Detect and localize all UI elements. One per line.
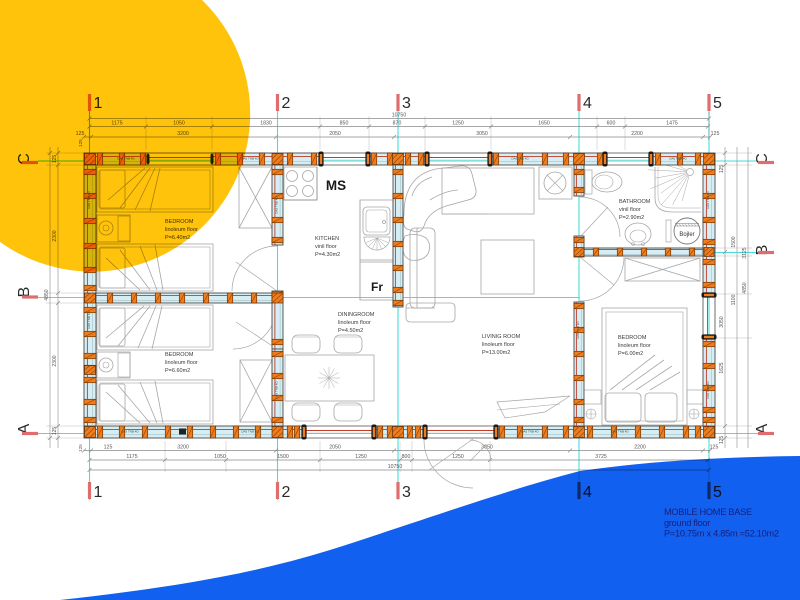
svg-text:1830: 1830 <box>260 121 272 127</box>
svg-text:DA5 TNB 4D: DA5 TNB 4D <box>706 191 710 209</box>
svg-text:125: 125 <box>52 155 58 164</box>
svg-text:2200: 2200 <box>631 131 643 137</box>
svg-text:P=6.40m2: P=6.40m2 <box>165 235 190 241</box>
svg-text:2: 2 <box>282 484 291 501</box>
svg-text:1175: 1175 <box>126 454 137 460</box>
svg-text:10750: 10750 <box>392 113 407 119</box>
svg-text:4: 4 <box>583 95 592 112</box>
svg-text:1175: 1175 <box>111 121 122 127</box>
svg-text:P=13.00m2: P=13.00m2 <box>482 350 510 356</box>
svg-text:1250: 1250 <box>355 454 367 460</box>
svg-text:2050: 2050 <box>329 445 341 451</box>
svg-text:2300: 2300 <box>52 355 58 366</box>
svg-text:P=2.90m2: P=2.90m2 <box>619 215 644 221</box>
svg-text:DA5 TNB 4D: DA5 TNB 4D <box>275 196 279 214</box>
svg-text:DA5 TNB 4D: DA5 TNB 4D <box>669 156 687 160</box>
svg-text:P=6.00m2: P=6.00m2 <box>618 351 643 357</box>
svg-text:BEDROOM: BEDROOM <box>165 352 194 358</box>
svg-text:125: 125 <box>711 131 720 137</box>
svg-text:3: 3 <box>402 95 411 112</box>
svg-text:ground floor: ground floor <box>664 518 710 528</box>
svg-text:DA5 TNB 4D: DA5 TNB 4D <box>611 429 629 433</box>
svg-text:DA5 TNB 4D: DA5 TNB 4D <box>87 311 91 329</box>
svg-text:DA5 TNB 4D: DA5 TNB 4D <box>241 429 259 433</box>
svg-text:125: 125 <box>719 436 725 445</box>
svg-text:3050: 3050 <box>476 131 488 137</box>
svg-text:600: 600 <box>607 121 616 127</box>
svg-text:KITCHEN: KITCHEN <box>315 236 339 242</box>
svg-text:125: 125 <box>78 444 83 452</box>
svg-text:2: 2 <box>282 95 291 112</box>
svg-text:BATHROOM: BATHROOM <box>619 199 651 205</box>
svg-text:1500: 1500 <box>277 454 289 460</box>
svg-text:linoleum floor: linoleum floor <box>165 360 198 366</box>
svg-text:BEDROOM: BEDROOM <box>165 219 194 225</box>
svg-text:P=4.30m2: P=4.30m2 <box>315 252 340 258</box>
svg-text:1650: 1650 <box>538 121 550 127</box>
svg-text:DA5 TNB 4D: DA5 TNB 4D <box>241 156 259 160</box>
svg-text:1: 1 <box>94 95 103 112</box>
svg-text:LIVINIG ROOM: LIVINIG ROOM <box>482 334 521 340</box>
svg-text:4850: 4850 <box>44 289 50 300</box>
svg-text:1625: 1625 <box>719 362 725 373</box>
svg-text:2300: 2300 <box>52 230 58 241</box>
svg-text:3125: 3125 <box>742 247 748 258</box>
svg-text:125: 125 <box>719 165 725 174</box>
svg-text:1100: 1100 <box>731 294 737 305</box>
svg-text:BEDROOM: BEDROOM <box>618 335 647 341</box>
svg-text:linoleum floor: linoleum floor <box>338 320 371 326</box>
svg-text:DA5 TNB 4D: DA5 TNB 4D <box>511 156 529 160</box>
svg-text:MS: MS <box>326 178 346 193</box>
svg-text:MOBILE HOME BASE: MOBILE HOME BASE <box>664 507 752 517</box>
svg-text:3725: 3725 <box>595 454 607 460</box>
svg-text:1475: 1475 <box>666 121 678 127</box>
svg-text:DA5 TNB 4D: DA5 TNB 4D <box>521 429 539 433</box>
svg-text:3050: 3050 <box>481 445 493 451</box>
svg-text:125: 125 <box>104 445 113 451</box>
svg-text:1500: 1500 <box>731 236 737 247</box>
svg-text:DA5 TNB 4D: DA5 TNB 4D <box>121 429 139 433</box>
svg-text:1050: 1050 <box>214 454 226 460</box>
svg-text:2050: 2050 <box>329 131 341 137</box>
svg-text:vinil floor: vinil floor <box>619 207 641 213</box>
svg-text:4: 4 <box>583 484 592 501</box>
svg-text:vinil floor: vinil floor <box>315 244 337 250</box>
svg-text:Fr: Fr <box>371 280 383 294</box>
svg-text:850: 850 <box>340 121 349 127</box>
svg-text:3200: 3200 <box>177 445 189 451</box>
svg-text:125: 125 <box>76 131 85 137</box>
svg-text:DA5 TNB 4D: DA5 TNB 4D <box>87 191 91 209</box>
svg-text:P=4.50m2: P=4.50m2 <box>338 328 363 334</box>
svg-text:800: 800 <box>402 454 411 460</box>
svg-text:3: 3 <box>402 484 411 501</box>
svg-text:1250: 1250 <box>452 454 464 460</box>
svg-text:Bojler: Bojler <box>679 232 694 238</box>
svg-text:5: 5 <box>713 95 722 112</box>
svg-text:1250: 1250 <box>452 121 464 127</box>
svg-text:125: 125 <box>78 139 83 147</box>
svg-text:DA5 TNB 4D: DA5 TNB 4D <box>706 381 710 399</box>
svg-text:1: 1 <box>94 484 103 501</box>
svg-text:P=6.60m2: P=6.60m2 <box>165 368 190 374</box>
svg-text:linoleum floor: linoleum floor <box>482 342 515 348</box>
svg-text:DA5 TNB 4D: DA5 TNB 4D <box>275 381 279 399</box>
svg-text:3200: 3200 <box>177 131 189 137</box>
svg-text:DA5 TNB 4D: DA5 TNB 4D <box>576 321 580 339</box>
svg-text:125: 125 <box>710 445 719 451</box>
svg-text:4850: 4850 <box>742 282 748 293</box>
svg-text:DA5 TNB 4D: DA5 TNB 4D <box>117 156 135 160</box>
svg-text:870: 870 <box>393 121 402 127</box>
svg-text:2200: 2200 <box>634 445 646 451</box>
svg-text:DININGROOM: DININGROOM <box>338 312 375 318</box>
svg-text:5: 5 <box>713 484 722 501</box>
svg-text:125: 125 <box>52 427 58 436</box>
svg-text:linoleum floor: linoleum floor <box>618 343 651 349</box>
svg-text:linoleum floor: linoleum floor <box>165 227 198 233</box>
svg-text:1050: 1050 <box>173 121 185 127</box>
svg-text:3050: 3050 <box>719 316 725 327</box>
svg-text:P=10.75m x 4.85m =52.10m2: P=10.75m x 4.85m =52.10m2 <box>664 529 779 539</box>
